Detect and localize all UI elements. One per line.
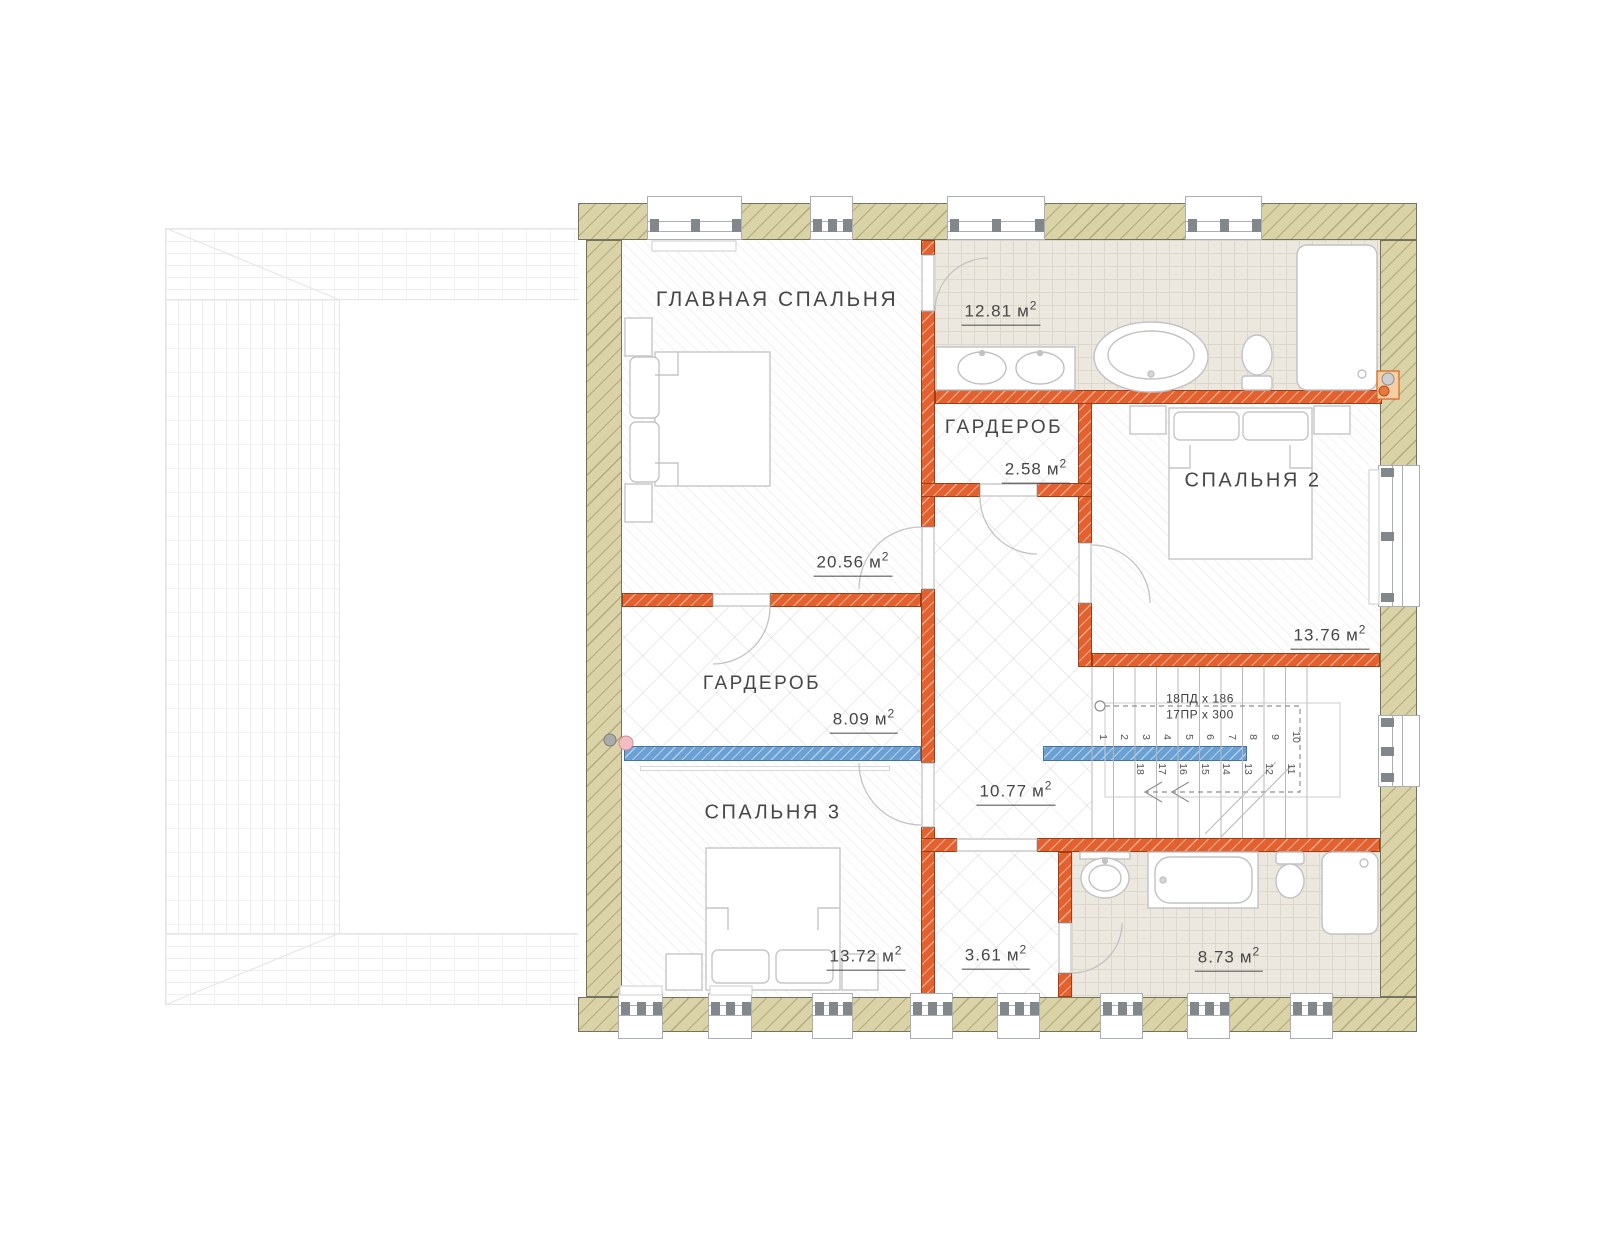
stair-handrail xyxy=(1043,746,1247,761)
window-mullion xyxy=(1381,718,1394,727)
stair-tread-number: 5 xyxy=(1183,734,1195,740)
window-mullion xyxy=(650,219,659,232)
window-mullion xyxy=(637,1002,646,1015)
window xyxy=(1185,196,1262,240)
window-mullion xyxy=(732,219,741,232)
window-mullion xyxy=(1323,1002,1332,1015)
terrace-band-left xyxy=(165,299,340,934)
area-label-bedroom-2: 13.76м2 xyxy=(1291,623,1370,650)
area-label-bathroom-bottom: 8.73м2 xyxy=(1195,945,1263,972)
stair-tread-number: 18 xyxy=(1134,763,1146,775)
window-mullion xyxy=(828,219,837,232)
window-mullion xyxy=(1381,593,1394,602)
interior-wall xyxy=(935,390,1382,404)
window-mullion xyxy=(1015,1002,1024,1015)
room-floor-closet xyxy=(935,852,1058,997)
room-label-wardrobe-top: ГАРДЕРОБ xyxy=(945,417,1063,439)
area-label-wardrobe-top: 2.58м2 xyxy=(1002,457,1070,484)
window xyxy=(1378,465,1420,607)
stair-tread-number: 16 xyxy=(1177,763,1189,775)
window-mullion xyxy=(1381,468,1394,477)
interior-wall xyxy=(921,838,957,852)
window-mullion xyxy=(1000,1002,1009,1015)
window-mullion xyxy=(813,219,822,232)
stair-tread-number: 3 xyxy=(1140,734,1152,740)
interior-wall xyxy=(1092,653,1380,667)
interior-wall xyxy=(1037,838,1380,852)
stair-tread-number: 1 xyxy=(1097,734,1109,740)
window xyxy=(1100,993,1143,1039)
window-mullion xyxy=(711,1002,720,1015)
window-mullion xyxy=(992,219,1001,232)
room-label-master-bedroom: ГЛАВНАЯ СПАЛЬНЯ xyxy=(656,288,898,312)
window xyxy=(1290,993,1333,1039)
window-mullion xyxy=(928,1002,937,1015)
exterior-wall-right xyxy=(1380,240,1417,997)
interior-wall xyxy=(1058,852,1072,923)
window xyxy=(947,196,1045,240)
room-floor-bathroom-bottom xyxy=(1072,852,1380,997)
room-label-bedroom-3: СПАЛЬНЯ 3 xyxy=(705,802,842,825)
stair-tread-number: 15 xyxy=(1199,763,1211,775)
interior-wall xyxy=(622,593,713,607)
window-mullion xyxy=(1308,1002,1317,1015)
area-label-bedroom-3: 13.72м2 xyxy=(827,944,906,971)
window-mullion xyxy=(1030,1002,1039,1015)
room-label-bedroom-2: СПАЛЬНЯ 2 xyxy=(1185,470,1322,493)
stair-tread-number: 13 xyxy=(1242,763,1254,775)
area-label-master-bedroom: 20.56м2 xyxy=(814,550,893,577)
interior-wall xyxy=(921,240,935,255)
interior-wall xyxy=(770,593,921,607)
stair-tread-number: 7 xyxy=(1226,734,1238,740)
window-mullion xyxy=(1381,773,1394,782)
window-mullion xyxy=(913,1002,922,1015)
stair-tread-number: 11 xyxy=(1285,764,1297,775)
interior-wall xyxy=(1037,483,1092,497)
window xyxy=(1378,715,1420,787)
window-mullion xyxy=(829,1002,838,1015)
window-mullion xyxy=(943,1002,952,1015)
stair-tread-number: 8 xyxy=(1247,734,1259,740)
interior-wall xyxy=(1078,397,1092,543)
window-mullion xyxy=(1381,747,1394,756)
window-mullion xyxy=(621,1002,630,1015)
window xyxy=(647,196,742,240)
exterior-wall-left xyxy=(586,240,622,997)
window xyxy=(708,993,752,1039)
window-mullion xyxy=(691,219,700,232)
window xyxy=(910,993,953,1039)
window-mullion xyxy=(1220,219,1229,232)
stair-tread-number: 17 xyxy=(1156,763,1168,775)
stair-tread-number: 6 xyxy=(1204,734,1216,740)
window-mullion xyxy=(843,219,852,232)
interior-wall xyxy=(921,483,980,497)
stair-tread-number: 14 xyxy=(1220,763,1232,775)
area-label-bathroom-top: 12.81м2 xyxy=(962,299,1041,326)
wardrobe-sliding-door xyxy=(624,746,921,761)
window-mullion xyxy=(815,1002,824,1015)
stair-tread-number: 4 xyxy=(1161,734,1173,740)
window xyxy=(1187,993,1230,1039)
window-mullion xyxy=(1293,1002,1302,1015)
window xyxy=(810,196,853,240)
window-mullion xyxy=(1035,219,1044,232)
stair-annotation: 18ПД x 186 17ПР x 300 xyxy=(1166,691,1234,722)
terrace-band-bottom xyxy=(165,933,586,1005)
interior-wall xyxy=(921,827,935,997)
interior-wall xyxy=(1078,603,1092,667)
window-mullion xyxy=(1188,219,1197,232)
wardrobe-rod xyxy=(640,766,890,771)
stair-tread-number: 2 xyxy=(1118,734,1130,740)
terrace-band-top xyxy=(165,228,586,300)
window-mullion xyxy=(843,1002,852,1015)
window-mullion xyxy=(950,219,959,232)
stair-tread-number: 10 xyxy=(1290,731,1302,743)
window-mullion xyxy=(1103,1002,1112,1015)
interior-wall xyxy=(1058,973,1072,997)
area-label-hall: 10.77м2 xyxy=(977,779,1056,806)
interior-wall xyxy=(921,589,935,763)
room-floor-bedroom-2 xyxy=(1092,404,1380,653)
window-mullion xyxy=(1252,219,1261,232)
window-mullion xyxy=(1205,1002,1214,1015)
window-mullion xyxy=(1133,1002,1142,1015)
stair-tread-number: 9 xyxy=(1269,734,1281,740)
window-mullion xyxy=(653,1002,662,1015)
window-mullion xyxy=(1118,1002,1127,1015)
window-mullion xyxy=(742,1002,751,1015)
area-label-wardrobe-left: 8.09м2 xyxy=(830,707,898,734)
window-mullion xyxy=(726,1002,735,1015)
floor-plan: ГЛАВНАЯ СПАЛЬНЯ ГАРДЕРОБ СПАЛЬНЯ 2 ГАРДЕ… xyxy=(0,0,1600,1245)
window-mullion xyxy=(1381,532,1394,541)
window-mullion xyxy=(1190,1002,1199,1015)
window-mullion xyxy=(1220,1002,1229,1015)
window xyxy=(618,993,663,1039)
window xyxy=(812,993,853,1039)
room-label-wardrobe-left: ГАРДЕРОБ xyxy=(703,673,821,695)
window xyxy=(997,993,1040,1039)
area-label-closet: 3.61м2 xyxy=(962,943,1030,970)
stair-tread-number: 12 xyxy=(1263,763,1275,775)
